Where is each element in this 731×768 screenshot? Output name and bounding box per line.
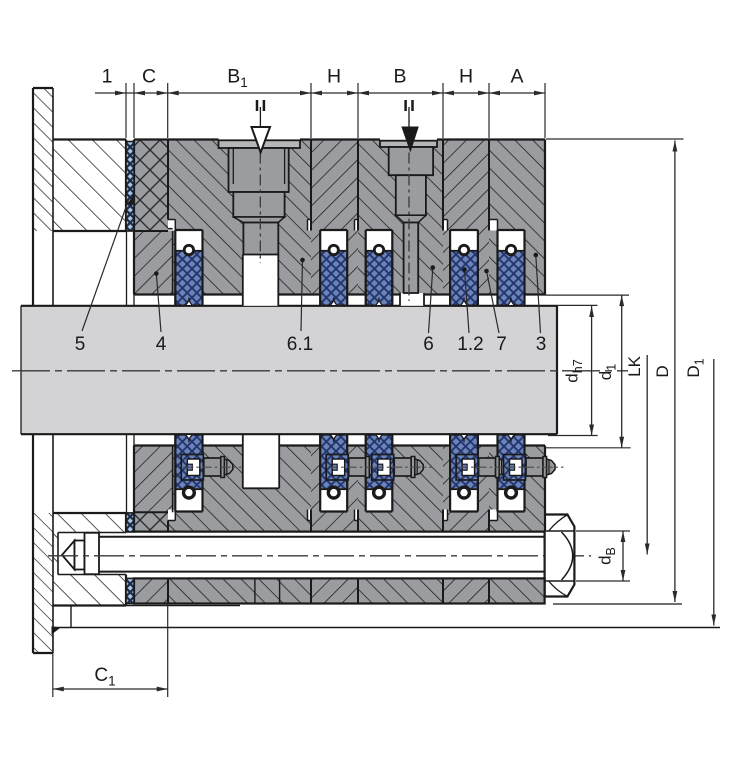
svg-text:1: 1 xyxy=(102,66,113,88)
svg-text:A: A xyxy=(510,66,523,88)
svg-text:6.1: 6.1 xyxy=(287,334,313,355)
svg-text:dB: dB xyxy=(596,547,619,565)
svg-text:6: 6 xyxy=(423,334,434,355)
svg-text:7: 7 xyxy=(496,334,507,355)
svg-text:5: 5 xyxy=(75,334,86,355)
svg-text:4: 4 xyxy=(156,334,167,355)
svg-text:B: B xyxy=(393,66,406,88)
svg-text:3: 3 xyxy=(536,334,547,355)
svg-text:C1: C1 xyxy=(94,665,115,689)
svg-text:LK: LK xyxy=(625,355,644,376)
svg-text:H: H xyxy=(459,66,473,88)
svg-text:1.2: 1.2 xyxy=(457,334,483,355)
svg-text:D1: D1 xyxy=(684,358,707,377)
svg-text:C: C xyxy=(142,66,156,88)
svg-text:D: D xyxy=(653,365,672,377)
svg-text:B1: B1 xyxy=(227,66,248,91)
svg-text:d1: d1 xyxy=(596,364,619,380)
svg-text:H: H xyxy=(327,66,341,88)
